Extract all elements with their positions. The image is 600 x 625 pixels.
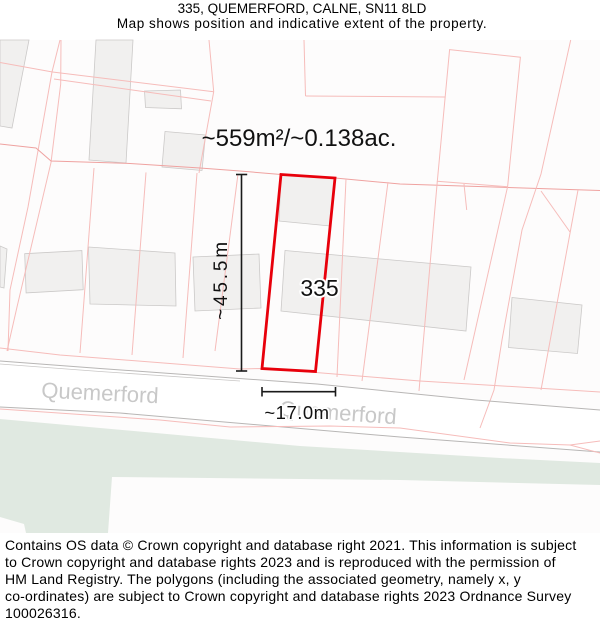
svg-text:335: 335 <box>300 275 338 301</box>
svg-text:~559m²/~0.138ac.: ~559m²/~0.138ac. <box>202 125 397 152</box>
svg-text:~17.0m: ~17.0m <box>264 402 329 423</box>
svg-text:~45.5m: ~45.5m <box>211 239 232 320</box>
